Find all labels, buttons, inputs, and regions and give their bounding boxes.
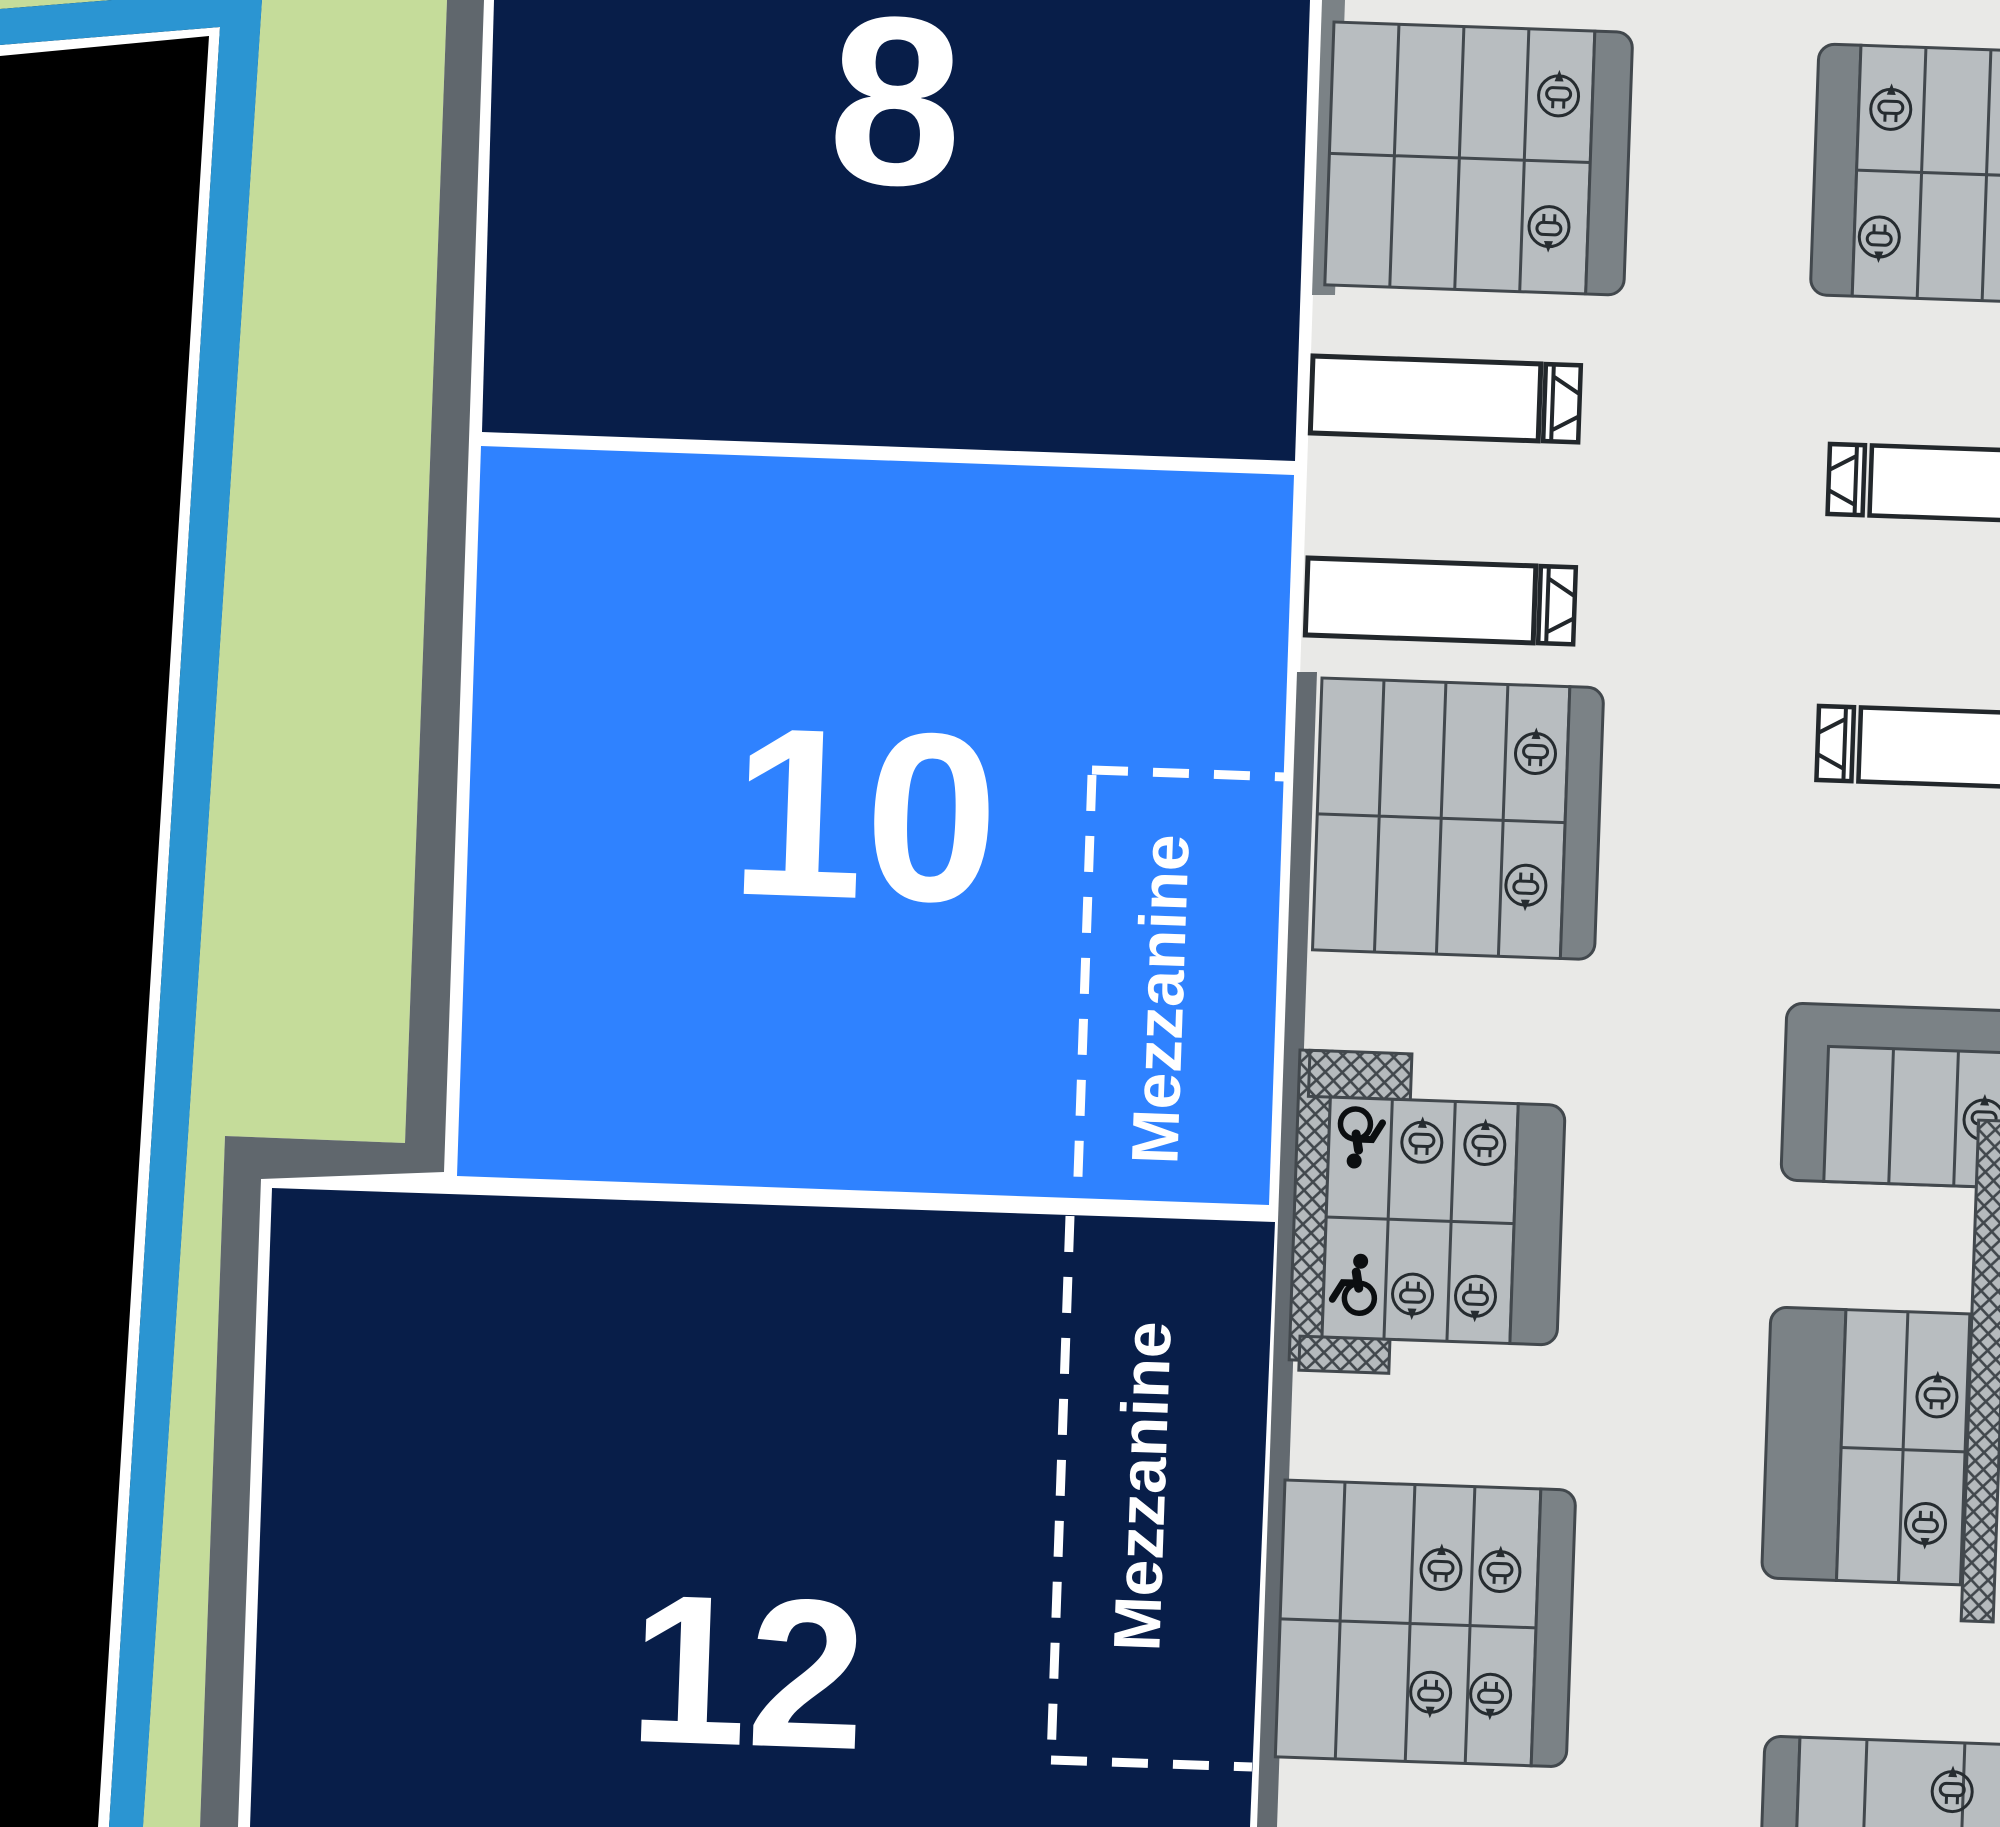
svg-text:10: 10: [727, 676, 1003, 953]
svg-text:12: 12: [626, 1549, 870, 1794]
svg-text:Mezzanine: Mezzanine: [1099, 1320, 1184, 1652]
svg-text:8: 8: [825, 0, 968, 237]
svg-text:Mezzanine: Mezzanine: [1117, 833, 1202, 1165]
